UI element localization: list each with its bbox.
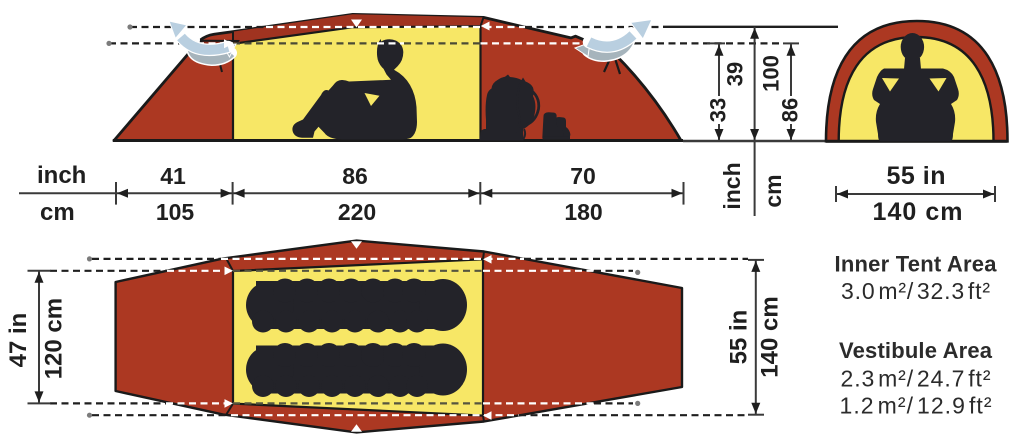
svg-text:120 cm: 120 cm xyxy=(41,298,68,379)
svg-text:2.3 m²/ 24.7 ft²: 2.3 m²/ 24.7 ft² xyxy=(841,365,991,391)
svg-text:inch: inch xyxy=(719,162,745,209)
svg-text:47 in: 47 in xyxy=(5,313,32,368)
svg-text:1.2 m²/ 12.9 ft²: 1.2 m²/ 12.9 ft² xyxy=(840,393,992,419)
svg-text:70: 70 xyxy=(570,163,596,189)
svg-text:55 in: 55 in xyxy=(726,310,753,365)
svg-text:55 in: 55 in xyxy=(887,162,946,190)
svg-text:Inner Tent Area: Inner Tent Area xyxy=(835,251,998,276)
svg-text:86: 86 xyxy=(342,163,368,189)
svg-text:33: 33 xyxy=(706,98,731,122)
svg-text:41: 41 xyxy=(160,163,186,189)
svg-text:100: 100 xyxy=(759,55,784,92)
svg-text:inch: inch xyxy=(37,162,86,189)
svg-text:3.0 m²/ 32.3 ft²: 3.0 m²/ 32.3 ft² xyxy=(841,278,990,304)
svg-text:Vestibule Area: Vestibule Area xyxy=(839,338,993,363)
svg-text:cm: cm xyxy=(760,174,786,207)
svg-text:cm: cm xyxy=(40,199,75,226)
svg-text:180: 180 xyxy=(564,199,602,225)
svg-text:105: 105 xyxy=(156,199,195,225)
svg-text:220: 220 xyxy=(338,199,376,225)
svg-text:140 cm: 140 cm xyxy=(873,198,963,226)
svg-text:39: 39 xyxy=(723,62,748,86)
svg-text:140 cm: 140 cm xyxy=(757,296,784,377)
svg-text:86: 86 xyxy=(778,98,803,122)
